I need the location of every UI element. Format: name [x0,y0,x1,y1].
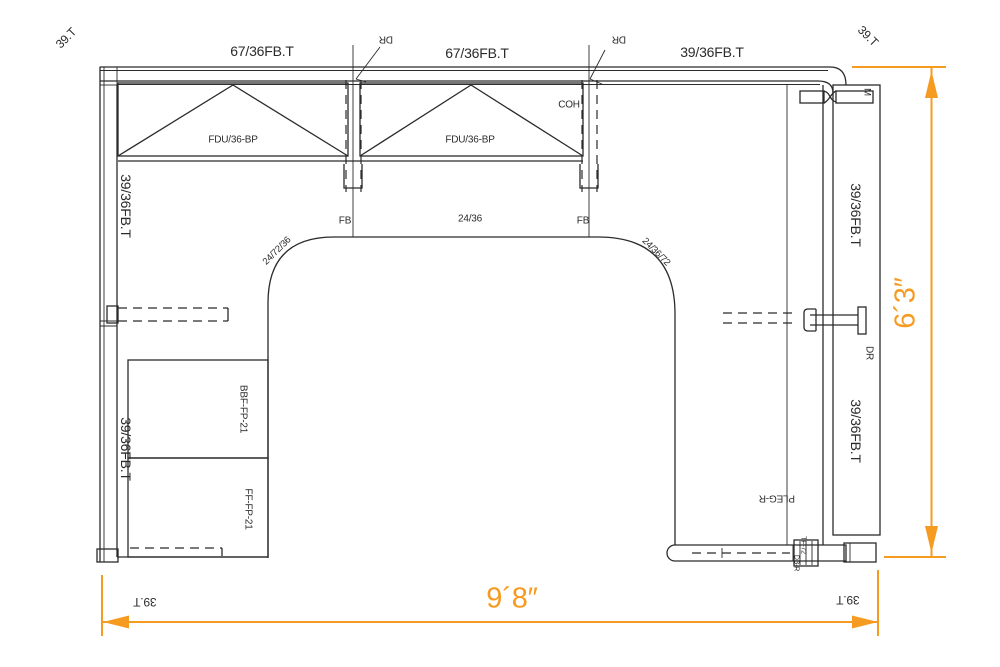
door-label-1: DR [379,34,393,45]
coh-label: COH [558,100,580,111]
panel-label-top-3: 39/36FB.T [680,44,744,60]
t-foot-label: TF-72 [800,536,807,554]
fb-post-label-right: FB [577,216,589,227]
mount-connector-label: M [862,88,873,96]
panel-label-left-1: 39/36FB.T [118,174,134,238]
leg-rail-assembly [667,540,876,566]
panel-label-top-1: 67/36FB.T [230,43,294,59]
dashed-accessory-left-top [107,306,228,323]
connector-post-left [344,45,380,237]
connector-post-right [580,45,605,237]
floor-plan-drawing: 39.T 67/36FB.T DR 67/36FB.T DR 39/36FB.T… [0,0,1000,667]
panel-label-right-2: 39/36FB.T [848,399,864,463]
door-label-2: DR [612,34,626,45]
t-foot-connector [804,307,866,334]
plan-linework [0,0,1000,667]
pedestal-ff-label: FF-FP-21 [243,488,254,529]
worksurface-outline [117,237,675,558]
bridge-surface-label: 24/36 [458,214,482,225]
dashed-accessory-right [723,313,793,323]
panel-tick-bottom-right: 39.T [836,593,859,607]
disc-base-label: DB-R [793,555,800,571]
panel-label-right-1: 39/36FB.T [848,183,864,247]
flipper-unit-label-1: FDU/36-BP [208,135,257,146]
panel-label-left-2: 39/36FB.T [118,417,134,481]
overall-width-dimension: 9´8″ [486,583,537,616]
panel-label-top-2: 67/36FB.T [445,45,509,61]
fb-post-label-left: FB [339,216,351,227]
panel-tick-bottom-left: 39.T [133,595,156,609]
pedestal-bbf-label: BBF-FP-21 [238,385,249,433]
dr-leader-1 [356,47,380,82]
dashed-accessory-left-bottom [130,548,222,556]
panel-leg-label: PLEG-R [759,493,795,504]
door-label-right: DR [864,346,875,360]
overall-height-dimension: 6´3″ [890,277,923,328]
panel-run-top [100,67,846,93]
flipper-unit-label-2: FDU/36-BP [445,135,494,146]
